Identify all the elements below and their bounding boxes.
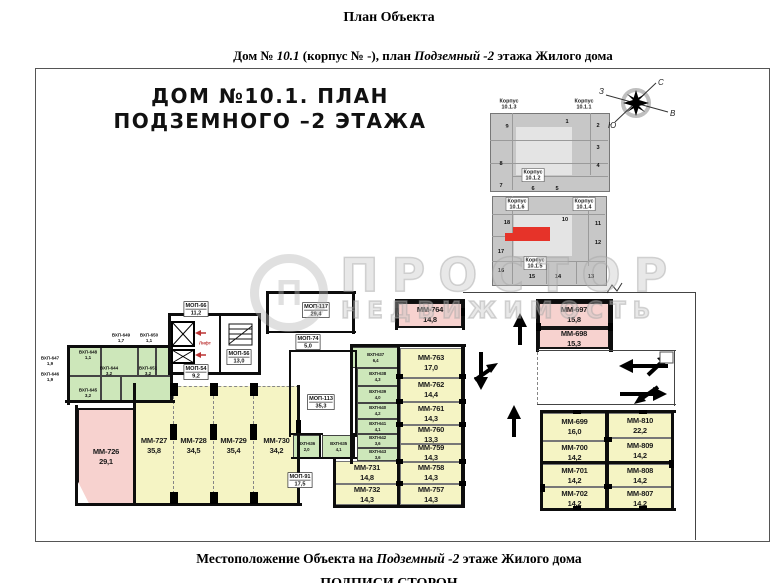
drawing-line <box>537 404 676 405</box>
compass-label-south: Ю <box>608 121 616 130</box>
room-label: ММ-80914,2 <box>627 441 653 461</box>
page-title: План Объекта <box>0 10 778 26</box>
room-label-vhp-645: ВХП-6453,2 <box>79 388 97 399</box>
wall-segment <box>133 383 136 505</box>
room-label: ММ-75814,3 <box>418 463 444 483</box>
room-mm-728: ММ-72834,5 <box>173 386 213 504</box>
key-plan-section-3: 3 <box>596 144 599 150</box>
room-label: ММ-73034,2 <box>263 436 289 456</box>
room-mm-764: ММ-76414,8 <box>397 302 463 328</box>
wall-segment <box>258 313 261 375</box>
column-pier <box>536 323 541 331</box>
room-label: ММ-69715,8 <box>561 305 587 325</box>
column-pier <box>459 399 466 404</box>
room-label: ММ-81022,2 <box>627 416 653 436</box>
text-part: (корпус № -), план <box>300 48 415 63</box>
room-mm-701: ММ-70114,2 <box>542 464 607 487</box>
wall-segment <box>266 291 269 334</box>
room-label: ММ-76414,8 <box>417 305 443 325</box>
plan-title-line1: ДОМ №10.1. ПЛАН <box>95 84 445 109</box>
room-label: ВХП-6376,4 <box>367 352 384 363</box>
room-mm-808: ММ-80814,2 <box>607 464 673 487</box>
footer-location: Местоположение Объекта на Подземный -2 э… <box>0 551 778 567</box>
column-pier <box>170 424 177 440</box>
column-pier <box>395 308 399 316</box>
wall-segment <box>289 350 291 437</box>
drawing-line <box>463 292 696 293</box>
key-plan-section-13: 13 <box>588 273 594 279</box>
room-vhp-637: ВХП-6376,4 <box>352 347 399 368</box>
room-label: ММ-75914,3 <box>418 443 444 463</box>
room-mm-731: ММ-73114,8 <box>335 461 399 484</box>
room-label: ММ-80814,2 <box>627 466 653 486</box>
wall-segment <box>353 433 355 459</box>
room-label-vhp-647: ВХП-6471,9 <box>41 356 59 367</box>
key-plan-section-8: 8 <box>499 160 502 166</box>
room-label: ВХП-6414,1 <box>370 421 387 432</box>
room-label-vhp-651: ВХП-6513,2 <box>139 366 157 377</box>
key-plan-section-10: 10 <box>562 216 568 222</box>
column-pier <box>170 492 178 504</box>
wall-segment <box>355 350 357 437</box>
room-mm-762: ММ-76214,4 <box>400 378 462 402</box>
room-mm-810: ММ-81022,2 <box>607 413 673 438</box>
column-pier <box>396 481 403 486</box>
room-vhp-643: ВХП-6433,6 <box>357 448 399 461</box>
room-label: ММ-69815,3 <box>561 329 587 349</box>
wall-segment <box>289 433 323 435</box>
room-mm-698: ММ-69815,3 <box>538 328 610 349</box>
column-pier <box>604 437 612 442</box>
compass-label-east: В <box>670 109 676 118</box>
column-pier <box>170 383 178 396</box>
wall-segment <box>350 344 353 464</box>
column-pier <box>396 374 403 379</box>
room-label: ВХП-6404,2 <box>370 405 387 416</box>
room-vhp-641: ВХП-6414,1 <box>357 419 399 434</box>
plan-title-line2: ПОДЗЕМНОГО –2 ЭТАЖА <box>95 109 445 134</box>
column-pier <box>639 506 647 510</box>
room-mm-726: ММ-72629,1 <box>77 408 135 505</box>
room-label-vhp-646: ВХП-6461,9 <box>41 372 59 383</box>
room-label: ММ-72629,1 <box>93 447 119 467</box>
column-pier <box>396 399 403 404</box>
room-mm-763: ММ-76317,0 <box>400 348 462 378</box>
text-part: Дом № <box>233 48 277 63</box>
wall-segment <box>333 459 336 508</box>
column-pier <box>396 459 403 464</box>
column-pier <box>210 492 218 504</box>
wall-segment <box>352 291 355 334</box>
key-plan-section-18: 18 <box>504 219 510 225</box>
wall-segment <box>350 344 466 347</box>
key-plan-section-7: 7 <box>499 182 502 188</box>
text-part: этажа Жилого дома <box>494 48 613 63</box>
room-label-vhp-650: ВХП-6501,1 <box>140 333 158 344</box>
wall-segment <box>67 345 173 348</box>
wall-segment <box>168 313 171 375</box>
room-label: ВХП-6354,1 <box>330 441 347 452</box>
room-label: ММ-69916,0 <box>561 417 587 437</box>
key-plan-korpus-label-10.1.1: Корпус10.1.1 <box>574 98 593 110</box>
key-plan-korpus-label-10.1.4: Корпус10.1.4 <box>573 197 596 211</box>
wall-segment <box>75 405 78 506</box>
room-mm-761: ММ-76114,3 <box>400 402 462 425</box>
key-plan-section-9: 9 <box>505 123 508 129</box>
document-sheet: План Объекта Дом № 10.1 (корпус № -), пл… <box>0 0 778 583</box>
room-label-mop-54: МОП-549,2 <box>184 364 209 379</box>
key-plan-section-17: 17 <box>498 248 504 254</box>
key-plan-section-5: 5 <box>555 185 558 191</box>
wall-segment <box>266 331 356 333</box>
ramp-dashed-edge <box>537 352 538 405</box>
column-pier <box>639 410 647 414</box>
wall-segment <box>395 299 465 303</box>
wall-segment <box>536 299 613 303</box>
room-mm-727: ММ-72735,8 <box>135 386 173 504</box>
room-label: ММ-70014,2 <box>561 443 587 463</box>
drawing-line <box>537 350 676 351</box>
wall-segment <box>168 372 261 375</box>
room-label-mop-113: МОП-11335,3 <box>307 394 335 409</box>
key-plan-korpus-label-10.1.2: Корпус10.1.2 <box>522 168 545 182</box>
column-pier <box>459 374 466 379</box>
wall-segment <box>168 313 261 316</box>
room-label: ВХП-6433,6 <box>370 449 387 460</box>
room-label: ВХП-6394,0 <box>370 389 387 400</box>
key-plan-highlighted-section <box>505 233 550 241</box>
room-label-mop-74: МОП-745,0 <box>296 334 321 349</box>
text-part: этаже Жилого дома <box>459 551 581 566</box>
lift-label: Лифт <box>199 340 211 345</box>
room-mm-732: ММ-73214,3 <box>335 484 399 505</box>
room-vhp-642: ВХП-6423,6 <box>357 434 399 448</box>
column-pier <box>210 424 217 440</box>
wall-segment <box>67 345 70 405</box>
compass-label-north: С <box>658 78 664 87</box>
key-plan-section-12: 12 <box>595 239 601 245</box>
room-mm-699: ММ-69916,0 <box>542 413 607 441</box>
column-pier <box>604 484 612 489</box>
column-pier <box>396 422 403 427</box>
room-label: ММ-73214,3 <box>354 485 380 505</box>
key-plan-section-4: 4 <box>596 162 599 168</box>
wall-segment <box>266 291 356 294</box>
column-pier <box>608 323 613 331</box>
room-label-mop-91: МОП-9117,5 <box>288 472 313 487</box>
text-part: Местоположение Объекта на <box>196 551 376 566</box>
page-subtitle: Дом № 10.1 (корпус № -), план Подземный … <box>0 48 778 64</box>
room-label-mop-56: МОП-5613,0 <box>227 349 252 364</box>
column-pier <box>459 481 466 486</box>
room-mm-729: ММ-72935,4 <box>213 386 253 504</box>
room-label: ММ-70114,2 <box>561 466 587 486</box>
text-part: Подземный -2 <box>414 48 494 63</box>
room-label-vhp-649: ВХП-6491,7 <box>112 333 130 344</box>
column-pier <box>459 459 466 464</box>
room-label-vhp-644: ВХП-6443,2 <box>100 366 118 377</box>
column-pier <box>669 460 674 468</box>
column-pier <box>540 484 545 492</box>
text-part: 10.1 <box>277 48 300 63</box>
key-plan-section-14: 14 <box>555 273 561 279</box>
wall-segment <box>65 400 175 403</box>
room-label-mop-117: МОП-11729,4 <box>302 302 330 317</box>
key-plan-section-15: 15 <box>529 273 535 279</box>
column-pier <box>296 420 301 433</box>
key-plan-korpus-label-10.1.5: Корпус10.1.5 <box>524 256 547 270</box>
room-label: ММ-72935,4 <box>220 436 246 456</box>
column-pier <box>250 492 258 504</box>
room-label: ММ-73114,8 <box>354 463 380 483</box>
room-label: ММ-76114,3 <box>418 404 444 424</box>
room-mm-758: ММ-75814,3 <box>400 462 462 484</box>
key-plan-korpus-label-10.1.3: Корпус10.1.3 <box>499 98 518 110</box>
key-plan-korpus-label-10.1.6: Корпус10.1.6 <box>506 197 529 211</box>
column-pier <box>461 308 465 316</box>
drawing-line <box>674 350 675 406</box>
room-label: ММ-76013,3 <box>418 425 444 445</box>
room-mm-759: ММ-75914,3 <box>400 444 462 462</box>
footer-signatures: ПОДПИСИ СТОРОН <box>0 576 778 583</box>
wall-segment <box>542 461 673 464</box>
room-vhp-639: ВХП-6394,0 <box>357 386 399 403</box>
text-part: Подземный -2 <box>376 551 459 566</box>
wall-segment <box>75 503 302 506</box>
room-label: ММ-72735,8 <box>141 436 167 456</box>
room-mm-757: ММ-75714,3 <box>400 484 462 505</box>
key-plan-section-11: 11 <box>595 220 601 226</box>
room-label: ММ-72834,5 <box>180 436 206 456</box>
compass-label-west: З <box>599 87 604 96</box>
room-label: ММ-76317,0 <box>418 353 444 373</box>
wall-segment <box>291 457 357 459</box>
room-label: ВХП-6423,6 <box>370 435 387 446</box>
column-pier <box>573 410 581 414</box>
wall-segment <box>219 316 221 372</box>
drawing-line <box>695 292 696 540</box>
column-pier <box>459 422 466 427</box>
column-pier <box>573 506 581 510</box>
room-mm-760: ММ-76013,3 <box>400 425 462 444</box>
column-pier <box>250 424 257 440</box>
room-label: ММ-76214,4 <box>418 380 444 400</box>
compass-rose: С З В Ю <box>598 76 678 132</box>
room-vhp-640: ВХП-6404,2 <box>357 403 399 419</box>
room-label: ВХП-6362,0 <box>299 441 316 452</box>
plan-title: ДОМ №10.1. ПЛАН ПОДЗЕМНОГО –2 ЭТАЖА <box>95 84 445 134</box>
room-vhp-638: ВХП-6384,3 <box>357 368 399 386</box>
room-label-vhp-648: ВХП-6481,1 <box>79 350 97 361</box>
column-pier <box>210 383 218 396</box>
key-plan-section-6: 6 <box>531 185 534 191</box>
room-mm-697: ММ-69715,8 <box>538 302 610 328</box>
wall-segment <box>289 350 357 352</box>
room-label: ВХП-6384,3 <box>370 371 387 382</box>
column-pier <box>250 383 258 396</box>
room-label: ММ-75714,3 <box>418 485 444 505</box>
key-plan-section-16: 16 <box>498 267 504 273</box>
wall-segment <box>319 435 321 459</box>
key-plan-section-1: 1 <box>565 118 568 124</box>
room-label-mop-66: МОП-6611,2 <box>184 301 209 316</box>
